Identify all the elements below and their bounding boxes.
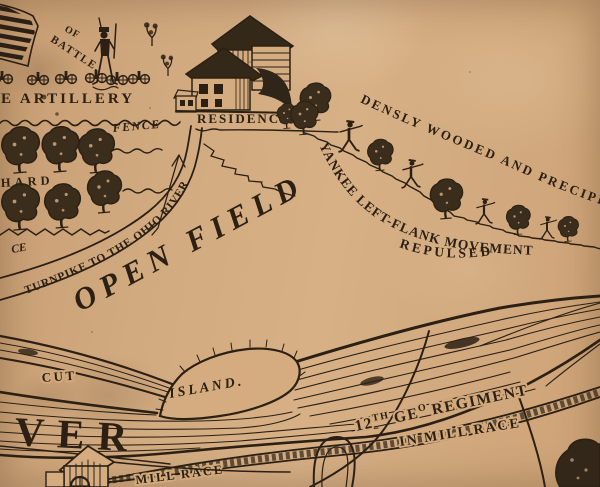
tree-icon	[88, 171, 122, 213]
skirmisher-icon	[476, 199, 496, 224]
island: ISLAND.	[156, 340, 300, 419]
label-river-partial: VER	[14, 408, 142, 461]
cannon-icon	[129, 71, 150, 83]
bush-icon	[161, 55, 173, 76]
label-of: OF	[63, 24, 82, 41]
river-north-bank-east	[295, 296, 600, 362]
cannon-icon	[28, 72, 49, 84]
cannon-icon	[0, 71, 12, 83]
river-riffle	[443, 335, 480, 352]
ink-blot	[55, 112, 59, 116]
label-fence-partial: CE	[10, 241, 28, 256]
cannon-icon	[56, 71, 77, 83]
tree-icon	[506, 205, 530, 234]
soldier-icon	[93, 18, 118, 90]
tree-icon	[79, 129, 115, 173]
skirmisher-icon	[402, 160, 424, 188]
corner-tree-icon	[556, 439, 600, 487]
tree-icon	[558, 216, 578, 241]
fence-line	[123, 189, 172, 193]
cannon-icon	[86, 70, 107, 82]
label-cut: CUT	[41, 368, 77, 385]
fence-line	[112, 149, 162, 153]
tree-icon	[42, 127, 79, 172]
tree-icon	[2, 184, 39, 230]
ink-blot	[42, 95, 47, 100]
skirmisher-icon	[540, 217, 557, 239]
skirmisher-icon	[339, 121, 363, 152]
flag-icon	[0, 4, 48, 66]
ground-line	[196, 129, 338, 132]
label-artillery: E ARTILLERY	[1, 91, 135, 107]
tree-icon	[430, 179, 462, 219]
cannon-icon	[107, 72, 128, 84]
river-riffle	[359, 374, 384, 387]
battle-map: ISLAND. VER CUT 12THGEOREGIMENT IN MILL …	[0, 0, 600, 487]
bush-icon	[144, 22, 158, 46]
artillery-row	[0, 70, 149, 84]
label-densly-wooded: DENSLY WOODED AND PRECIPI	[359, 91, 600, 208]
tree-icon	[291, 101, 318, 135]
label-fence: FENCE	[111, 117, 161, 135]
tree-icon	[45, 184, 81, 228]
tree-icon	[2, 127, 39, 173]
label-orchard-partial: HARD	[0, 173, 53, 190]
